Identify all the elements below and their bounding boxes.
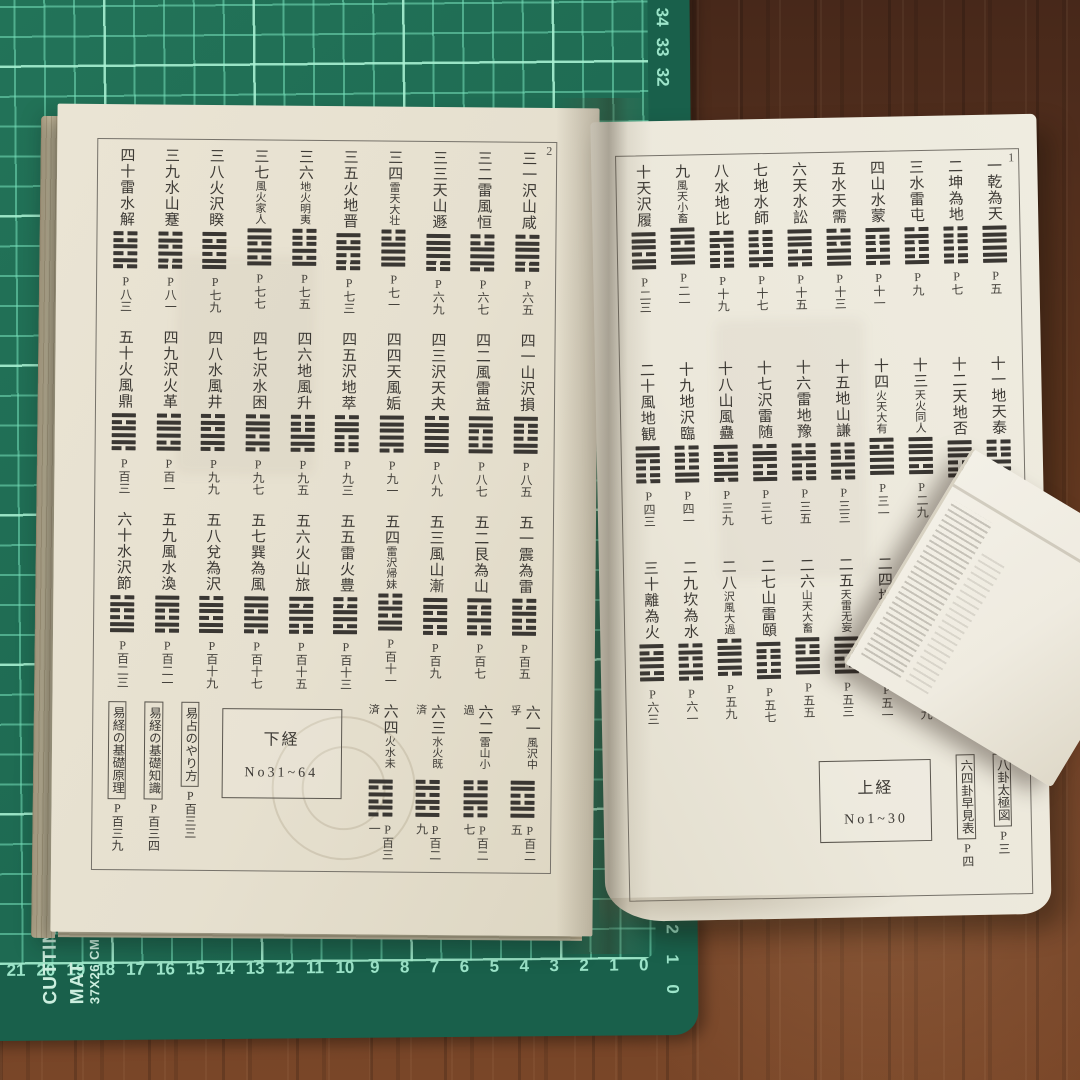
yang-line <box>199 623 223 627</box>
yang-line <box>203 259 227 263</box>
hexagram-entry: 二六山天大畜P五五 <box>786 557 829 750</box>
yin-line <box>830 456 854 460</box>
yin-line <box>679 677 703 681</box>
hexagram-number: 十二 <box>950 356 967 388</box>
hexagram-entry: 十天沢履P二三 <box>622 164 665 355</box>
page-ref: P八五 <box>518 460 532 498</box>
yin-line <box>908 464 932 468</box>
hexagram-label: 二七山雷頤 <box>758 558 776 638</box>
hexagram-number: 四一 <box>519 333 535 365</box>
yang-line <box>246 421 270 425</box>
yin-line <box>469 436 493 440</box>
yang-line <box>982 225 1006 229</box>
hexagram-glyph <box>943 226 968 267</box>
section-box-upper-canon: 上経 No1~30 <box>819 759 933 843</box>
page-ref: P六三 <box>645 687 659 725</box>
hexagram-entry: 四六地風升P九五 <box>280 331 326 505</box>
yang-line <box>515 248 539 252</box>
page-ref: P十一 <box>871 271 885 309</box>
hexagram-glyph <box>156 414 180 454</box>
page-ref: P百十一 <box>383 637 397 687</box>
page-ref: P四三 <box>641 489 655 527</box>
yin-line <box>752 444 776 448</box>
yang-line <box>513 450 537 454</box>
hexagram-name: 地天泰 <box>989 387 1006 435</box>
yang-line <box>424 423 448 427</box>
hexagram-entry: 十五地山謙P三三 <box>821 358 864 549</box>
yin-line <box>631 252 655 256</box>
yin-line <box>986 446 1010 450</box>
reference-entries: 八卦太極図P三六四卦早見表P四 <box>947 753 1022 888</box>
yang-line <box>827 262 851 266</box>
hexagram-label: 二坤為地 <box>945 158 963 222</box>
yin-line <box>467 632 491 636</box>
yin-line <box>515 235 539 239</box>
yin-line <box>423 611 447 615</box>
hexagram-number: 五五 <box>338 513 354 545</box>
hexagram-glyph <box>639 644 664 685</box>
yin-line <box>943 226 967 230</box>
hexagram-number: 三四 <box>386 150 402 182</box>
hexagram-name: 沢山咸 <box>520 183 536 231</box>
page-ref: P百十五 <box>293 640 307 690</box>
yang-line <box>752 451 776 455</box>
yang-line <box>335 428 359 432</box>
yin-line <box>426 267 450 271</box>
hexagram-name: 地沢臨 <box>677 393 694 441</box>
hexagram-number: 三九 <box>163 148 179 180</box>
yang-line <box>201 421 225 425</box>
hexagram-name: 雷風恒 <box>475 182 491 230</box>
hexagram-entry: 四山水蒙P十一 <box>856 160 899 351</box>
yang-line <box>467 618 491 622</box>
page-ref: P百二五 <box>509 823 536 870</box>
yin-line <box>749 263 773 267</box>
yin-line <box>416 793 440 797</box>
yin-line <box>337 253 361 257</box>
hexagram-number: 五八 <box>204 512 220 544</box>
section-title: 上経 <box>857 774 893 799</box>
yin-line <box>639 671 663 675</box>
yang-line <box>426 247 450 251</box>
yang-line <box>201 434 225 438</box>
hexagram-name: 水山蹇 <box>162 180 178 228</box>
yin-line <box>674 452 698 456</box>
hexagram-number: 二 <box>946 158 962 174</box>
yin-line <box>514 430 538 434</box>
ruler-number: 12 <box>270 958 300 978</box>
yin-line <box>756 662 780 666</box>
hexagram-label: 十四火天大有 <box>871 358 889 434</box>
hexagram-number: 四七 <box>251 330 267 362</box>
hexagram-number: 八 <box>712 163 728 179</box>
yin-line <box>904 254 928 258</box>
yang-line <box>675 472 699 476</box>
hexagram-label: 十七沢雷随 <box>754 360 772 440</box>
yang-line <box>380 415 404 419</box>
yang-line <box>289 617 313 621</box>
yin-line <box>756 648 780 652</box>
section-title: 下経 <box>263 725 299 749</box>
yin-line <box>289 603 313 607</box>
yang-line <box>380 436 404 440</box>
yin-line <box>470 268 494 272</box>
hexagram-label: 四十雷水解 <box>117 147 134 227</box>
yang-line <box>982 232 1006 236</box>
hexagram-name: 天火同人 <box>913 389 926 433</box>
yang-line <box>670 247 694 251</box>
page-ref: P百三九 <box>110 801 124 851</box>
yang-line <box>709 237 733 241</box>
page-ref: P四一 <box>680 489 694 527</box>
yang-line <box>635 453 659 457</box>
yang-line <box>469 416 493 420</box>
reference-label: 六四卦早見表 <box>956 754 976 839</box>
yang-line <box>113 258 137 262</box>
hexagram-entry: 三二雷風恒P六七 <box>460 150 506 324</box>
hexagram-name: 山水蒙 <box>868 176 885 224</box>
yang-line <box>199 629 223 633</box>
ruler-number: 1 <box>599 955 629 975</box>
hexagram-label: 四八水風井 <box>205 330 222 410</box>
yang-line <box>158 238 182 242</box>
yin-line <box>334 597 358 601</box>
hexagram-label: 十八山風蠱 <box>715 361 733 441</box>
hexagram-glyph <box>113 231 137 271</box>
yang-line <box>795 637 819 641</box>
yin-line <box>709 244 733 248</box>
hexagram-number: 十八 <box>716 361 733 393</box>
ruler-number: 3 <box>539 956 569 976</box>
hexagram-name: 坎為水 <box>681 591 698 639</box>
yang-line <box>631 239 655 243</box>
yin-line <box>378 614 402 618</box>
ruler-number: 34 <box>652 5 672 29</box>
hexagram-name: 火地晋 <box>341 181 357 229</box>
yin-line <box>831 476 855 480</box>
hexagram-name: 艮為山 <box>472 546 488 594</box>
page-ref: P百一 <box>161 457 175 495</box>
yang-line <box>639 664 663 668</box>
yin-line <box>795 644 819 648</box>
hexagram-entry: 八水地比P十九 <box>700 163 743 354</box>
yin-line <box>424 416 448 420</box>
ruler-number: 32 <box>652 65 672 89</box>
hexagram-entry: 三五火地晋P七三 <box>326 149 372 323</box>
ruler-number: 13 <box>240 959 270 979</box>
yin-line <box>380 449 404 453</box>
hexagram-number: 三三 <box>431 150 447 182</box>
yin-line <box>635 466 659 470</box>
hexagram-name: 水風井 <box>206 362 222 410</box>
yang-line <box>424 436 448 440</box>
hexagram-name: 沢水困 <box>250 362 266 410</box>
page-ref: P二一 <box>676 271 690 309</box>
yang-line <box>511 780 535 784</box>
yang-line <box>244 623 268 627</box>
yin-line <box>986 453 1010 457</box>
yang-line <box>670 234 694 238</box>
page-ref: P三 <box>996 828 1010 854</box>
yin-line <box>290 448 314 452</box>
yin-line <box>292 235 316 239</box>
hexagram-label: 五一震為雷 <box>516 515 533 595</box>
yang-line <box>423 605 447 609</box>
hexagram-name: 天沢履 <box>634 180 651 228</box>
yin-line <box>290 421 314 425</box>
yang-line <box>869 458 893 462</box>
yang-line <box>908 444 932 448</box>
yang-line <box>511 787 535 791</box>
hexagram-glyph <box>378 593 402 633</box>
page-ref: P百三一 <box>366 822 393 869</box>
yang-line <box>244 603 268 607</box>
hexagram-glyph <box>713 445 738 486</box>
yang-line <box>423 618 447 622</box>
yang-line <box>426 254 450 258</box>
yang-line <box>368 792 392 796</box>
hexagram-glyph <box>423 598 447 638</box>
yin-line <box>463 807 487 811</box>
yang-line <box>514 443 538 447</box>
yin-line <box>368 813 392 817</box>
hexagram-entry: 六二雷山小過P百二七 <box>453 704 498 870</box>
hexagram-entry: 七地水師P十七 <box>739 162 782 353</box>
page-ref: P八九 <box>429 459 443 497</box>
yin-line <box>865 241 889 245</box>
yin-line <box>467 605 491 609</box>
yin-line <box>713 458 737 462</box>
hexagram-glyph <box>756 642 781 683</box>
hexagram-label: 三三天山遯 <box>430 150 447 230</box>
yang-line <box>247 228 271 232</box>
page-ref: P三七 <box>758 487 772 525</box>
section-range: No1~30 <box>844 811 908 828</box>
yang-line <box>292 249 316 253</box>
hexagram-number: 五六 <box>294 513 310 545</box>
hexagram-number: 六二 <box>476 704 492 736</box>
hexagram-number: 五一 <box>517 515 533 547</box>
yin-line <box>335 442 359 446</box>
yang-line <box>717 645 741 649</box>
hexagram-label: 六三水火既済 <box>412 704 446 776</box>
yin-line <box>289 630 313 634</box>
hexagram-name: 沢風大過 <box>722 591 735 635</box>
hexagram-name: 沢火革 <box>161 362 177 410</box>
yin-line <box>670 241 694 245</box>
hexagram-number: 四三 <box>429 332 445 364</box>
hexagram-number: 四九 <box>161 330 177 362</box>
page-ref: P五九 <box>723 682 737 720</box>
yang-line <box>982 239 1006 243</box>
yin-line <box>511 794 535 798</box>
page-ref: P五 <box>988 269 1002 295</box>
yang-line <box>909 470 933 474</box>
hexagram-entry: 五六火山旅P百十五 <box>278 513 324 693</box>
page-ref: P四 <box>960 841 974 867</box>
right-page-number: 1 <box>1008 150 1014 165</box>
hexagram-label: 三八火沢睽 <box>207 148 224 228</box>
hexagram-label: 三十離為火 <box>641 560 659 640</box>
hexagram-entry: 三水雷屯P九 <box>895 159 938 350</box>
hexagram-name: 風天小畜 <box>675 180 688 224</box>
yin-line <box>792 477 816 481</box>
yang-line <box>795 657 819 661</box>
yang-line <box>982 245 1006 249</box>
yang-line <box>110 602 134 606</box>
yang-line <box>424 429 448 433</box>
hexagram-glyph <box>333 597 357 637</box>
yang-line <box>289 597 313 601</box>
yang-line <box>247 235 271 239</box>
yin-line <box>113 265 137 269</box>
yin-line <box>333 624 357 628</box>
hexagram-glyph <box>674 445 699 486</box>
yang-line <box>830 462 854 466</box>
hexagram-number: 四八 <box>206 330 222 362</box>
hexagram-entry: 六天水訟P十五 <box>778 161 821 352</box>
yin-line <box>335 449 359 453</box>
yin-line <box>113 251 137 255</box>
hexagram-name: 水天需 <box>829 176 846 224</box>
hexagram-glyph <box>826 228 851 269</box>
yang-line <box>787 229 811 233</box>
hexagram-name: 雷天大壮 <box>388 182 400 226</box>
yin-line <box>943 233 967 237</box>
hexagram-name: 雷水解 <box>118 179 134 227</box>
yang-line <box>670 227 694 231</box>
yang-line <box>515 255 539 259</box>
page-ref: P五七 <box>762 685 776 723</box>
hexagram-name: 地火明夷 <box>298 181 310 225</box>
yin-line <box>831 469 855 473</box>
hexagram-entry: 五十火風鼎P百三 <box>101 329 147 503</box>
yang-line <box>378 607 402 611</box>
yang-line <box>463 800 487 804</box>
yang-line <box>713 465 737 469</box>
yin-line <box>986 439 1010 443</box>
yin-line <box>247 242 271 246</box>
yin-line <box>756 669 780 673</box>
hexagram-number: 五四 <box>383 514 399 546</box>
yang-line <box>378 620 402 624</box>
yin-line <box>199 616 223 620</box>
yang-line <box>333 617 357 621</box>
hexagram-number: 十 <box>634 164 650 180</box>
page-ref: P百三 <box>116 456 130 494</box>
hexagram-glyph <box>112 413 136 453</box>
hexagram-number: 六 <box>790 161 806 177</box>
yang-line <box>983 259 1007 263</box>
hexagram-entry: 十七沢雷随P三七 <box>743 360 786 551</box>
yin-line <box>201 414 225 418</box>
yang-line <box>158 252 182 256</box>
yin-line <box>709 231 733 235</box>
hexagram-label: 七地水師 <box>750 162 768 226</box>
hexagram-name: 離為火 <box>642 592 659 640</box>
hexagram-glyph <box>791 443 816 484</box>
yang-line <box>156 447 180 451</box>
reference-entries: 易占のやり方P百三三易経の基礎知識P百三四易経の基礎原理P百三九 <box>98 701 209 868</box>
yang-line <box>787 243 811 247</box>
yang-line <box>155 602 179 606</box>
yang-line <box>112 433 136 437</box>
hexagram-name: 震為雷 <box>517 547 533 595</box>
hexagram-number: 三八 <box>208 148 224 180</box>
hexagram-entry: 二十風地観P四三 <box>626 362 669 553</box>
yang-line <box>713 445 737 449</box>
yin-line <box>369 786 393 790</box>
hexagram-label: 十一地天泰 <box>988 355 1006 435</box>
yin-line <box>112 420 136 424</box>
yin-line <box>113 238 137 242</box>
hexagram-glyph <box>199 596 223 636</box>
hexagram-entry: 三一沢山咸P六五 <box>505 151 551 325</box>
yang-line <box>110 629 134 633</box>
hexagram-entry: 十八山風蠱P三九 <box>704 360 747 551</box>
yang-line <box>787 256 811 260</box>
hexagram-name: 風水渙 <box>159 544 175 592</box>
yang-line <box>756 642 780 646</box>
hexagram-entry: 六三水火既済P百二九 <box>405 704 450 870</box>
hexagram-label: 五水天需 <box>828 160 846 224</box>
hexagram-number: 二六 <box>798 557 815 589</box>
hexagram-number: 四 <box>868 160 884 176</box>
yang-line <box>244 616 268 620</box>
yin-line <box>865 234 889 238</box>
hexagram-entry: 三四雷天大壮P七一 <box>371 149 417 323</box>
hexagram-number: 四五 <box>340 331 356 363</box>
ruler-number: 6 <box>449 957 479 977</box>
hexagram-number: 五七 <box>249 512 265 544</box>
page-ref: P百三四 <box>146 801 160 851</box>
yin-line <box>378 593 402 597</box>
page-ref: P九三 <box>340 458 354 496</box>
yang-line <box>982 252 1006 256</box>
yin-line <box>292 229 316 233</box>
yin-line <box>368 799 392 803</box>
yin-line <box>830 449 854 453</box>
hexagram-name: 雷沢帰妹 <box>385 546 397 590</box>
reference-entry: 易占のやり方P百三三 <box>180 702 200 868</box>
hexagram-row-bottom: 八卦太極図P三六四卦早見表P四 上経 No1~30 <box>627 745 1032 895</box>
yang-line <box>753 477 777 481</box>
yin-line <box>110 609 134 613</box>
yang-line <box>156 427 180 431</box>
hexagram-glyph <box>512 599 536 639</box>
hexagram-entry: 六十水沢節P百二三 <box>99 511 145 691</box>
hexagram-number: 三二 <box>475 150 491 182</box>
yin-line <box>244 630 268 634</box>
ruler-number: 17 <box>120 960 150 980</box>
yin-line <box>904 240 928 244</box>
yin-line <box>201 427 225 431</box>
yang-line <box>423 598 447 602</box>
page-ref: P十七 <box>754 273 768 311</box>
hexagram-number: 二八 <box>720 559 737 591</box>
yin-line <box>291 415 315 419</box>
yang-line <box>670 254 694 258</box>
page-ref: P三三 <box>836 486 850 524</box>
ruler-number: 8 <box>390 957 420 977</box>
hexagram-entry: 四八水風井P九九 <box>190 330 236 504</box>
reference-label: 八卦太極図 <box>992 753 1012 826</box>
hexagram-glyph <box>631 232 656 273</box>
page-ref: P十三 <box>832 272 846 310</box>
hexagram-label: 十五地山謙 <box>832 358 850 438</box>
yang-line <box>632 266 656 270</box>
yin-line <box>514 437 538 441</box>
